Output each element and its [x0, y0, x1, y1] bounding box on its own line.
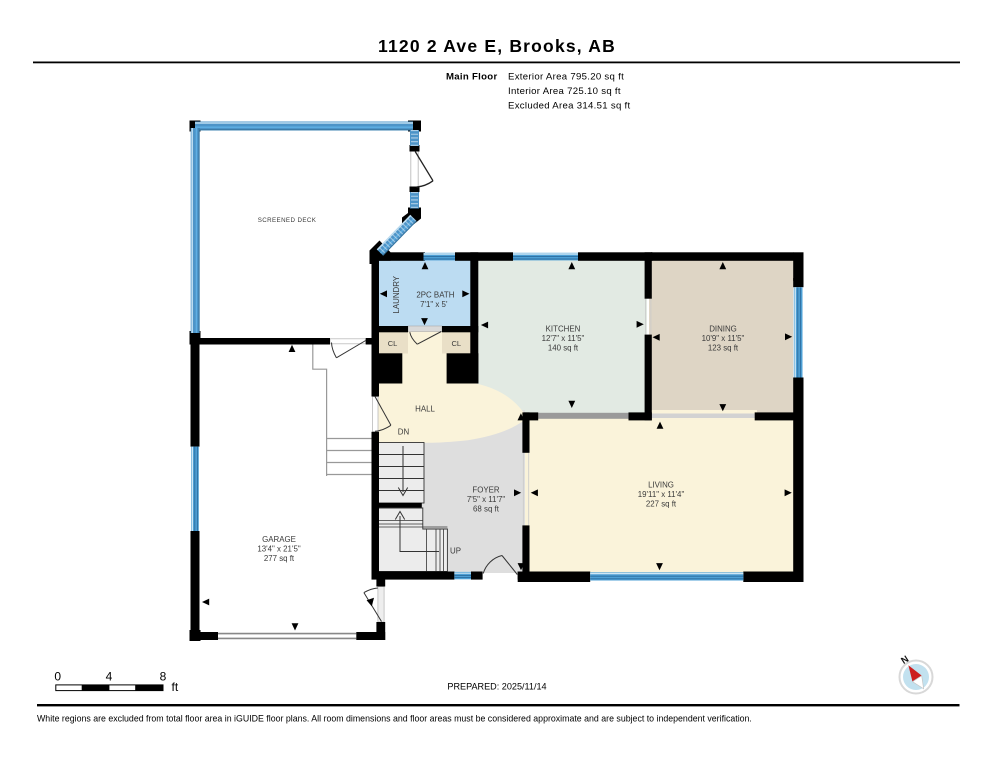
svg-text:DINING: DINING	[709, 325, 737, 334]
svg-text:Exterior Area 795.20 sq ft: Exterior Area 795.20 sq ft	[508, 72, 624, 83]
svg-text:FOYER: FOYER	[472, 486, 499, 495]
svg-text:SCREENED DECK: SCREENED DECK	[258, 217, 317, 224]
svg-text:Excluded Area 314.51 sq ft: Excluded Area 314.51 sq ft	[508, 101, 631, 112]
svg-text:LAUNDRY: LAUNDRY	[392, 275, 401, 313]
svg-text:19'11" x 11'4": 19'11" x 11'4"	[638, 490, 685, 499]
svg-text:8: 8	[160, 670, 167, 684]
svg-text:140 sq ft: 140 sq ft	[548, 344, 579, 353]
svg-text:13'4" x 21'5": 13'4" x 21'5"	[257, 545, 300, 554]
svg-text:0: 0	[54, 670, 61, 684]
svg-text:123 sq ft: 123 sq ft	[708, 344, 739, 353]
svg-text:10'9" x 11'5": 10'9" x 11'5"	[702, 334, 745, 343]
svg-text:White regions are excluded fro: White regions are excluded from total fl…	[37, 714, 752, 724]
svg-text:CL: CL	[388, 339, 398, 348]
svg-text:Main Floor: Main Floor	[446, 72, 498, 83]
svg-text:7'5" x 11'7": 7'5" x 11'7"	[467, 495, 505, 504]
svg-text:277 sq ft: 277 sq ft	[264, 554, 295, 563]
svg-text:DN: DN	[398, 428, 410, 437]
svg-text:12'7" x 11'5": 12'7" x 11'5"	[542, 334, 585, 343]
svg-text:UP: UP	[450, 547, 461, 556]
svg-text:KITCHEN: KITCHEN	[546, 325, 581, 334]
svg-text:LIVING: LIVING	[648, 481, 674, 490]
svg-text:1120 2 Ave E, Brooks, AB: 1120 2 Ave E, Brooks, AB	[378, 36, 616, 56]
svg-text:Interior Area 725.10 sq ft: Interior Area 725.10 sq ft	[508, 86, 621, 97]
svg-text:68 sq ft: 68 sq ft	[473, 505, 500, 514]
svg-text:PREPARED: 2025/11/14: PREPARED: 2025/11/14	[447, 682, 546, 692]
svg-text:ft: ft	[172, 680, 179, 694]
svg-text:227 sq ft: 227 sq ft	[646, 500, 677, 509]
svg-text:4: 4	[106, 670, 113, 684]
svg-text:7'1" x 5': 7'1" x 5'	[420, 300, 448, 309]
svg-text:2PC BATH: 2PC BATH	[416, 290, 454, 299]
svg-text:GARAGE: GARAGE	[262, 535, 296, 544]
svg-text:CL: CL	[452, 339, 462, 348]
svg-text:HALL: HALL	[415, 405, 435, 414]
